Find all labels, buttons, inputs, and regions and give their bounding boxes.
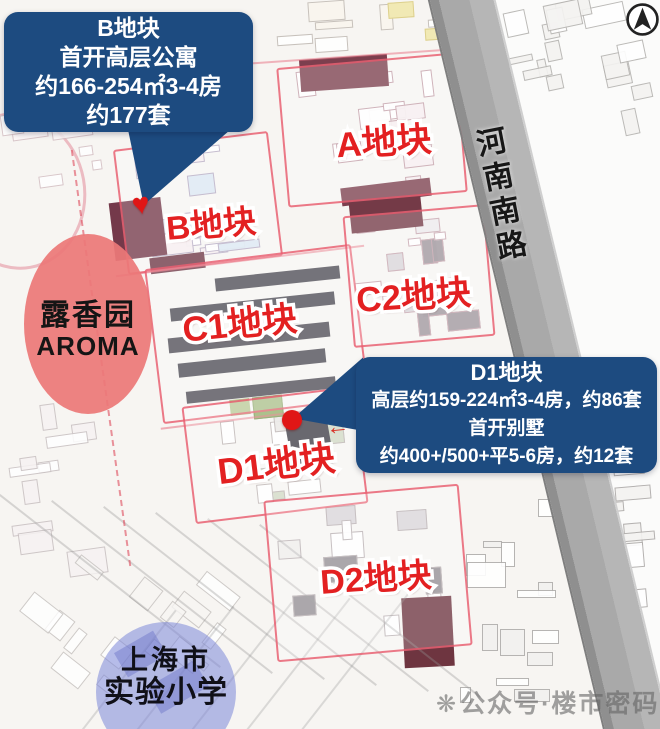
building-block (308, 0, 347, 22)
building-block (21, 479, 40, 505)
aroma-name-en: AROMA (0, 332, 176, 360)
building-block (615, 485, 652, 502)
building-block (630, 82, 653, 101)
building-block (544, 39, 563, 61)
building-block (500, 629, 525, 656)
dot-marker-icon (282, 410, 302, 430)
building-block (482, 624, 498, 651)
school-name-line1: 上海市 (66, 646, 266, 676)
building-block (315, 20, 353, 30)
building-block (45, 432, 88, 450)
plot-label-b: B地块B地块 (164, 194, 258, 250)
callout-b: B地块 首开高层公寓 约166-254㎡3-4房 约177套 (4, 12, 253, 132)
plot-label-c2-text: C2地块 (355, 273, 472, 320)
building-block (502, 9, 529, 38)
aroma-name-cn: 露香园 (0, 300, 176, 332)
building-block (38, 173, 63, 188)
plot-label-b-text: B地块 (165, 202, 258, 247)
building-block (79, 145, 94, 157)
callout-d1-title: D1地块 (470, 359, 542, 387)
left-arrow-icon: ← (325, 412, 351, 441)
building-block (92, 159, 103, 170)
building-block (543, 0, 584, 32)
building-block (40, 403, 58, 431)
school-name-line2: 实验小学 (66, 676, 266, 709)
building-block (315, 36, 349, 54)
building-block (546, 73, 565, 91)
callout-d1-line4: 约400+/500+平5-6房，约12套 (380, 443, 633, 471)
building-block (276, 33, 313, 46)
callout-d1-line3: 首开别墅 (468, 415, 544, 443)
plot-label-a: A地块A地块 (334, 111, 433, 169)
watermark-logo-icon: ❋ (436, 691, 458, 718)
building-block (616, 40, 646, 64)
callout-b-line4: 约177套 (86, 101, 170, 130)
north-compass-icon (625, 2, 660, 37)
building-block (517, 590, 557, 599)
callout-d1: D1地块 高层约159-224㎡3-4房，约86套 首开别墅 约400+/500… (356, 357, 657, 473)
plot-label-d2-text: D2地块 (319, 556, 433, 602)
watermark-text: 公众号·楼市密码SH (460, 690, 660, 718)
aroma-label: 露香园 AROMA (0, 300, 176, 360)
building-block (387, 1, 414, 19)
plot-label-d2: D2地块D2地块 (318, 547, 433, 604)
school-label: 上海市 实验小学 (66, 646, 266, 709)
callout-b-line3: 约166-254㎡3-4房 (35, 72, 222, 101)
building-block (483, 541, 502, 548)
map-canvas: 河南南路 露香园 AROMA 上海市 实验小学 A地块A地块 B地块B地块 C1… (0, 0, 660, 729)
watermark: ❋公众号·楼市密码SH (436, 684, 660, 720)
building-block (19, 455, 38, 470)
building-block (621, 108, 641, 136)
building-block (532, 630, 559, 644)
plot-label-a-text: A地块 (335, 120, 433, 166)
callout-b-title: B地块 (97, 14, 160, 43)
building-block (527, 652, 553, 666)
callout-b-line2: 首开高层公寓 (60, 43, 198, 72)
building-block (467, 562, 506, 588)
plot-label-c2: C2地块C2地块 (354, 264, 472, 323)
callout-d1-line2: 高层约159-224㎡3-4房，约86套 (371, 387, 641, 415)
